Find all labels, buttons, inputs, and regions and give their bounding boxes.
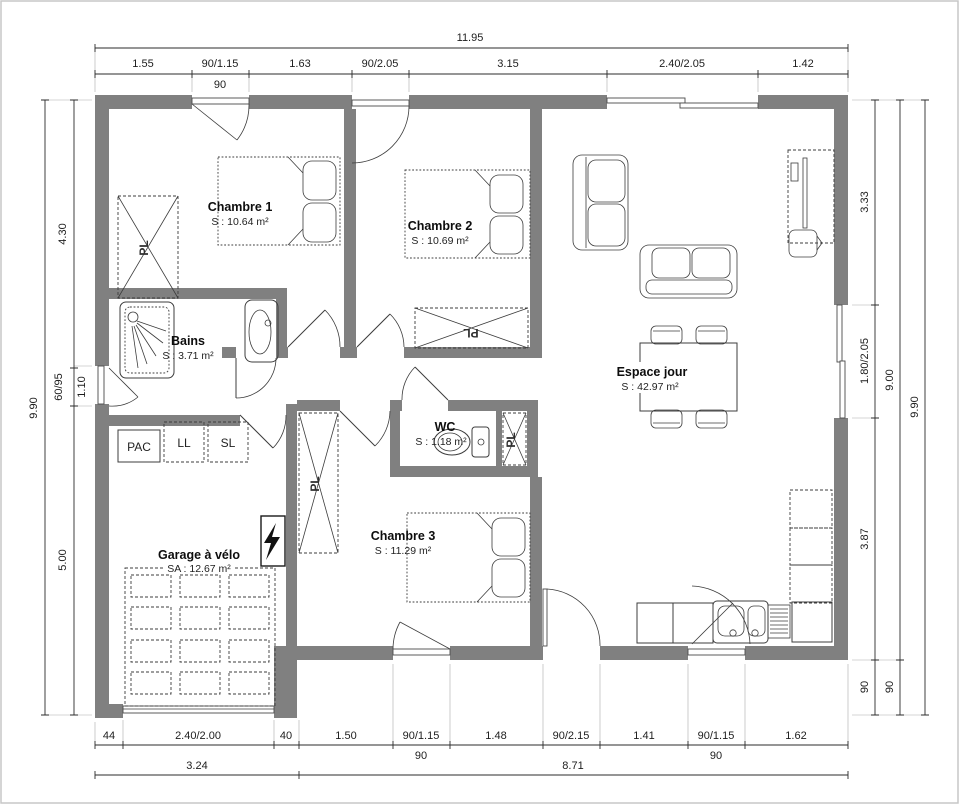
dim-left: 9.90 4.30 60/95 1.10 5.00 [28, 100, 88, 715]
closet-label: PL [308, 476, 322, 491]
dim-label: 44 [103, 730, 115, 742]
room-name: Chambre 2 [408, 219, 473, 233]
utility-appliances: PAC LL SL [118, 422, 248, 462]
dim-label: 2.40/2.05 [659, 58, 705, 70]
room-area: S : 11.29 m² [375, 545, 432, 557]
door-bains [236, 358, 276, 398]
window [352, 100, 409, 106]
washbasin [245, 300, 278, 362]
room-name: Garage à vélo [158, 548, 240, 562]
dim-label: 90/1.15 [403, 730, 440, 742]
room-labels: Chambre 1 S : 10.64 m² Chambre 2 S : 10.… [137, 200, 699, 575]
dim-label: 3.87 [859, 528, 871, 549]
floor-plan: 11.95 1.55 90/1.15 1.63 90/2.05 3.15 2.4… [0, 0, 960, 805]
dim-label: 2.40/2.00 [175, 730, 221, 742]
window-sliding [840, 361, 845, 418]
wall-segment [95, 404, 109, 718]
dim-label: 1.48 [485, 730, 506, 742]
wall-segment [286, 404, 297, 718]
sl-label: SL [221, 436, 236, 450]
wall-segment [390, 466, 538, 477]
furniture-chambre2 [405, 170, 530, 348]
sofa-horizontal [640, 245, 737, 298]
dim-label: 60/95 [53, 373, 65, 401]
room-area: SA : 12.67 m² [167, 563, 231, 575]
dim-label: 1.63 [289, 58, 310, 70]
wall-segment [530, 477, 542, 646]
dim-label: 4.30 [57, 223, 69, 244]
dim-label: 5.00 [57, 549, 69, 570]
wall-segment [600, 646, 688, 660]
bike-area [125, 568, 275, 706]
electrical-panel [261, 516, 285, 566]
wall-segment [527, 400, 538, 477]
desk-chair [789, 230, 817, 257]
dim-right: 3.33 1.80/2.05 3.87 90 9.00 90 9.90 [859, 100, 929, 715]
wall-segment [95, 95, 192, 109]
sofa-vertical [573, 155, 628, 250]
dim-label: 90 [415, 750, 427, 762]
kitchen [637, 490, 832, 643]
wall-segment [390, 400, 402, 411]
dim-label: 8.71 [562, 760, 583, 772]
dim-label: 90/2.05 [362, 58, 399, 70]
garage-content [125, 516, 285, 706]
wall-segment [530, 109, 542, 358]
ll-label: LL [177, 436, 191, 450]
closet-label: PL [137, 240, 151, 255]
kitchen-corner-unit [792, 602, 832, 642]
door-chambre2 [357, 314, 404, 347]
dim-label: 90 [859, 681, 871, 693]
room-area: S : 1.18 m² [415, 436, 467, 448]
dim-label: 9.90 [909, 396, 921, 417]
window [192, 98, 249, 104]
dim-label: 90 [214, 79, 226, 91]
dim-label: 1.62 [785, 730, 806, 742]
door-kitchen-appliance [692, 586, 750, 644]
window [393, 649, 450, 655]
shower [120, 302, 174, 378]
dim-label: 11.95 [457, 32, 484, 44]
dim-label: 90 [884, 681, 896, 693]
kitchen-sink [713, 601, 768, 643]
wall-segment [409, 95, 607, 109]
furniture-espace-jour [573, 150, 834, 643]
door-entrance [543, 589, 600, 646]
kitchen-tall-unit [790, 528, 832, 565]
wall-segment [344, 109, 356, 347]
walls [95, 95, 848, 718]
wall-segment [390, 411, 400, 466]
room-name: Espace jour [617, 365, 688, 379]
drainer [768, 605, 790, 638]
dim-bottom: 44 2.40/2.00 40 1.50 90/1.15 1.48 90/2.1… [95, 730, 848, 779]
wall-segment [109, 415, 240, 426]
chair [696, 326, 727, 344]
wall-segment [496, 411, 502, 466]
wall-segment [448, 400, 538, 411]
pac-label: PAC [127, 440, 151, 454]
room-area: S : 10.64 m² [211, 216, 269, 228]
chair [651, 410, 682, 428]
wall-segment [450, 646, 543, 660]
dim-label: 40 [280, 730, 292, 742]
dim-label: 9.00 [884, 369, 896, 390]
window-swing-chambre1 [192, 104, 249, 140]
room-name: WC [435, 420, 456, 434]
wall-segment [834, 95, 848, 305]
door-chambre1 [288, 310, 340, 347]
closet-label: PL [463, 326, 478, 340]
dim-label: 90/1.15 [698, 730, 735, 742]
wall-segment [834, 418, 848, 660]
dim-label: 1.42 [792, 58, 813, 70]
bike-rack [131, 575, 269, 694]
garage-door [123, 706, 274, 713]
dim-label: 1.50 [335, 730, 356, 742]
dim-label: 3.15 [497, 58, 518, 70]
room-area: S : 3.71 m² [162, 350, 214, 362]
wall-segment [297, 400, 340, 411]
window-swing-chambre3 [393, 622, 450, 649]
dim-label: 1.80/2.05 [859, 338, 871, 384]
extension-lines [45, 48, 925, 742]
floor-plan-page: 11.95 1.55 90/1.15 1.63 90/2.05 3.15 2.4… [0, 0, 960, 805]
door-garage [240, 415, 286, 448]
dim-top: 11.95 1.55 90/1.15 1.63 90/2.05 3.15 2.4… [95, 32, 848, 91]
desk [788, 150, 834, 257]
room-name: Bains [171, 334, 205, 348]
chair [651, 326, 682, 344]
window [98, 366, 104, 404]
closet-label: PL [504, 432, 518, 447]
kitchen-tall-unit [790, 565, 832, 603]
window-swing-bains [109, 368, 138, 406]
wall-segment [95, 95, 109, 366]
door-chambre3 [340, 411, 390, 446]
room-name: Chambre 1 [208, 200, 273, 214]
window-sliding-bay [607, 98, 685, 103]
wall-segment [95, 704, 123, 718]
dim-label: 90/1.15 [202, 58, 239, 70]
wall-segment [249, 95, 352, 109]
door-wc [402, 367, 448, 400]
window [688, 649, 745, 655]
kitchen-tall-unit [790, 490, 832, 528]
dim-label: 90 [710, 750, 722, 762]
dim-label: 90/2.15 [553, 730, 590, 742]
wall-segment [222, 347, 236, 358]
dim-label: 3.33 [859, 191, 871, 212]
dim-label: 1.10 [76, 376, 88, 397]
dim-label: 3.24 [186, 760, 207, 772]
dim-label: 1.41 [633, 730, 654, 742]
bed [407, 513, 530, 602]
chair [696, 410, 727, 428]
dim-label: 9.90 [28, 397, 40, 418]
dim-label: 1.55 [132, 58, 153, 70]
window-sliding-bay [680, 103, 758, 108]
wall-segment [290, 646, 393, 660]
window-swing-chambre2 [352, 106, 409, 163]
wall-segment [109, 288, 287, 299]
wall-segment [283, 347, 288, 358]
room-name: Chambre 3 [371, 529, 436, 543]
room-area: S : 10.69 m² [411, 235, 469, 247]
wall-segment [404, 347, 538, 358]
wall-segment [340, 347, 357, 358]
room-area: S : 42.97 m² [621, 381, 679, 393]
wall-segment [745, 646, 848, 660]
window-sliding [837, 305, 842, 362]
